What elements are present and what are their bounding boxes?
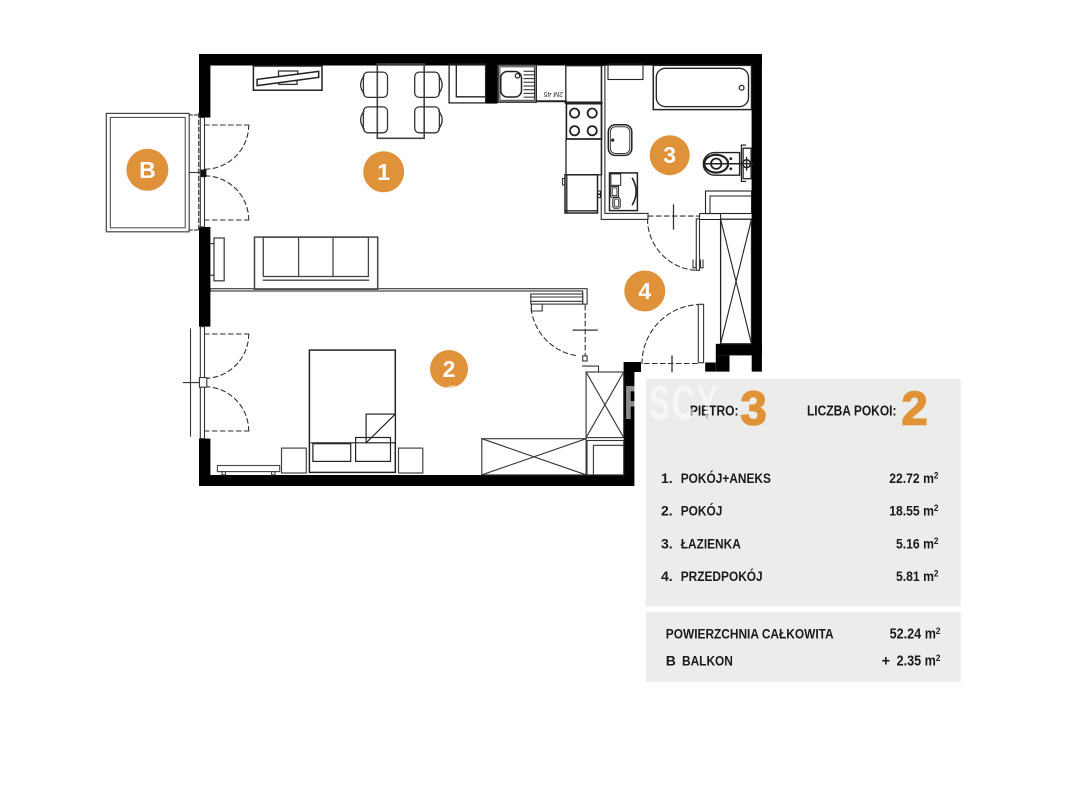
- svg-text:4: 4: [638, 278, 651, 304]
- svg-text:2.: 2.: [661, 503, 673, 519]
- svg-text:POKÓJ: POKÓJ: [681, 503, 723, 519]
- svg-text:4.: 4.: [661, 568, 673, 584]
- svg-text:2M 45: 2M 45: [543, 90, 563, 97]
- svg-text:52.24 m2: 52.24 m2: [890, 625, 941, 641]
- svg-text:18.55 m2: 18.55 m2: [889, 503, 938, 519]
- svg-text:5.81 m2: 5.81 m2: [896, 568, 939, 584]
- svg-text:B: B: [666, 653, 676, 669]
- svg-text:2.35 m2: 2.35 m2: [897, 653, 941, 669]
- svg-text:3.: 3.: [661, 535, 673, 551]
- svg-text:PRZEDPOKÓJ: PRZEDPOKÓJ: [681, 568, 763, 584]
- svg-text:3: 3: [741, 382, 767, 435]
- svg-text:B: B: [139, 157, 156, 183]
- svg-text:O: O: [440, 375, 467, 429]
- svg-text:1: 1: [377, 159, 390, 185]
- svg-text:22.72 m2: 22.72 m2: [889, 470, 938, 486]
- svg-text:1.: 1.: [661, 470, 673, 486]
- svg-text:5.16 m2: 5.16 m2: [896, 535, 939, 551]
- svg-text:2: 2: [902, 382, 928, 435]
- svg-text:LICZBA POKOI:: LICZBA POKOI:: [807, 402, 897, 419]
- svg-text:POWIERZCHNIA CAŁKOWITA: POWIERZCHNIA CAŁKOWITA: [666, 625, 834, 641]
- svg-text:+: +: [882, 654, 890, 670]
- svg-text:RSCY: RSCY: [624, 375, 720, 429]
- svg-text:POKÓJ+ANEKS: POKÓJ+ANEKS: [681, 470, 772, 486]
- svg-text:ŁAZIENKA: ŁAZIENKA: [681, 535, 742, 551]
- svg-text:BALKON: BALKON: [682, 653, 733, 669]
- svg-text:3: 3: [663, 142, 676, 168]
